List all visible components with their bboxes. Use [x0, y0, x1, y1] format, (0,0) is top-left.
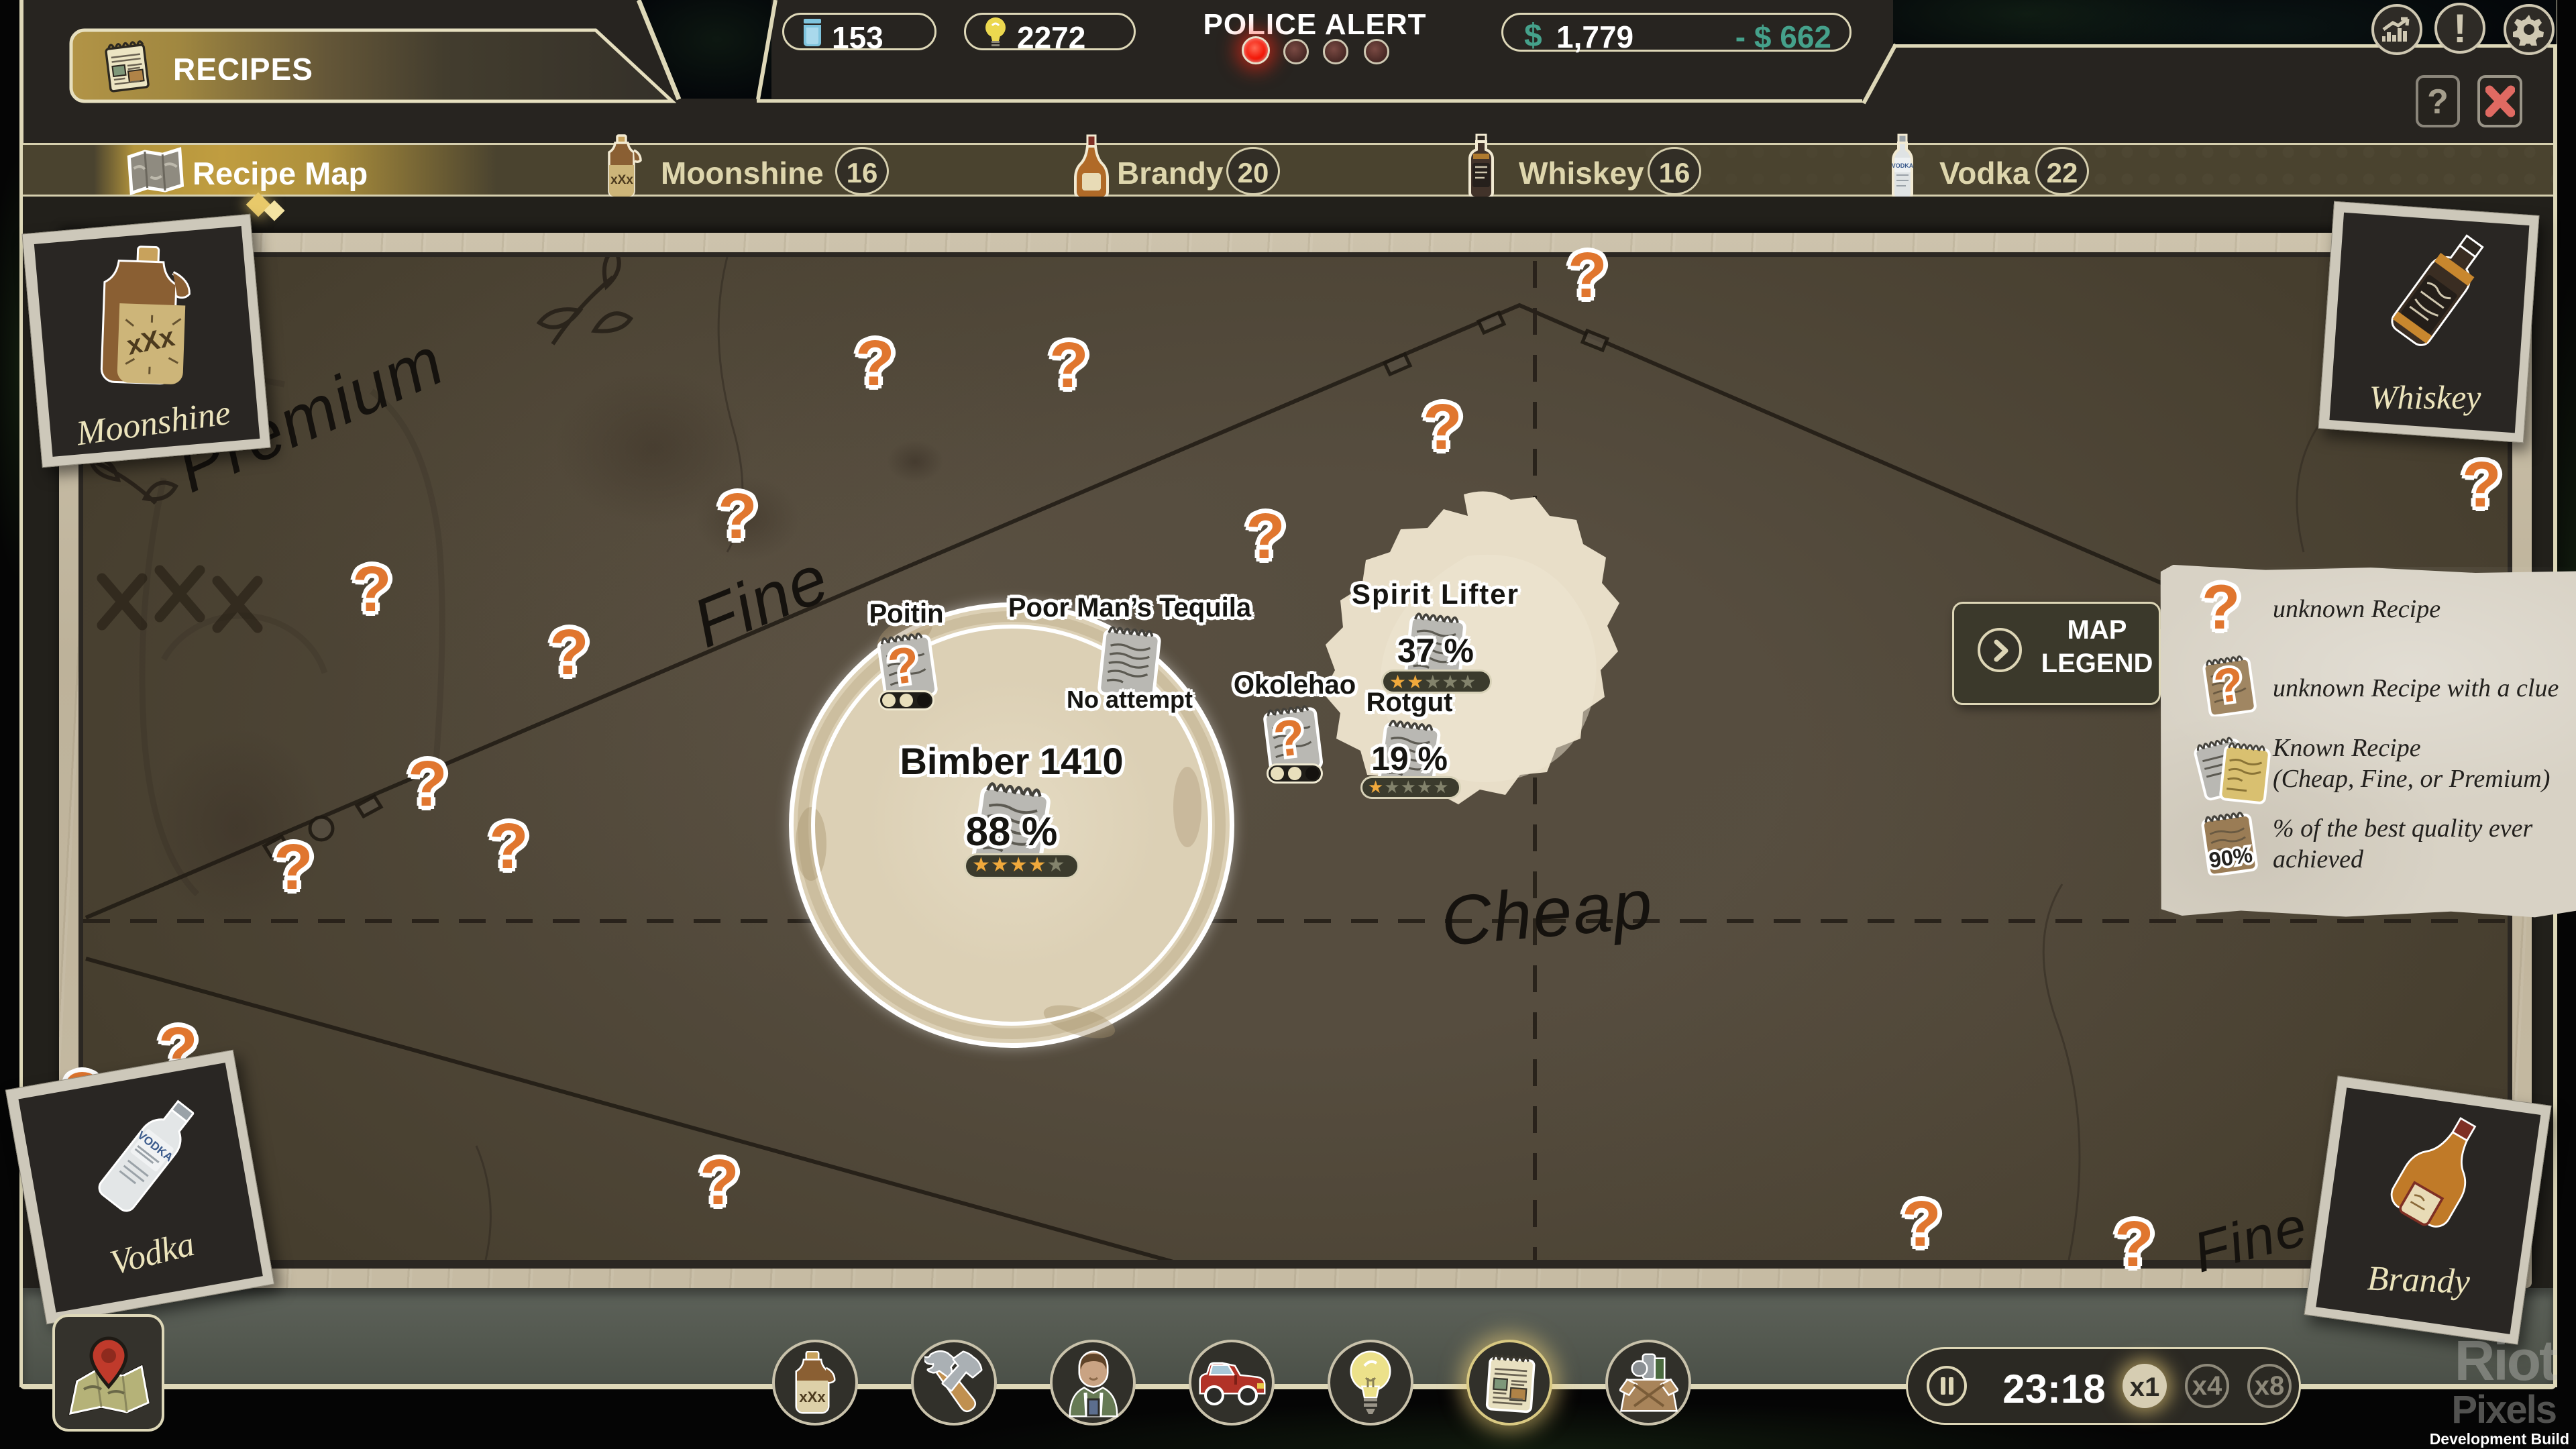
svg-text:VODKA: VODKA: [1892, 162, 1914, 169]
svg-text:xXx: xXx: [799, 1389, 826, 1405]
svg-text:xXx: xXx: [610, 173, 633, 187]
